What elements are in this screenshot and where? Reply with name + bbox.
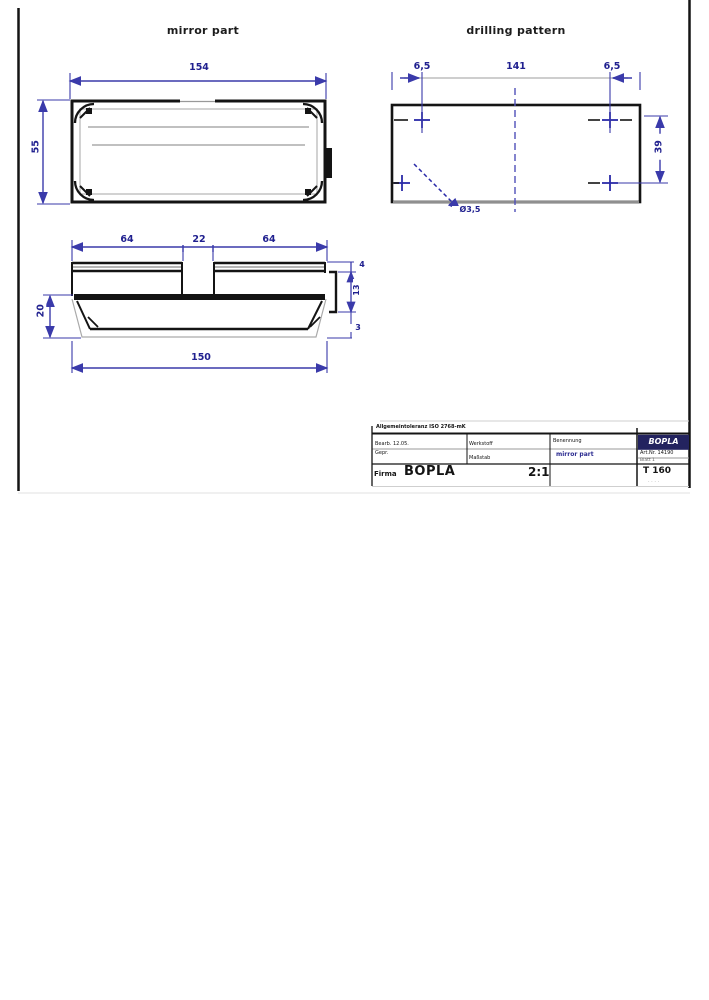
checked-by-row: Gepr. <box>375 451 388 456</box>
view-title-mirror-part: mirror part <box>148 25 258 36</box>
dim-front-body-height: 20 <box>36 298 46 324</box>
dim-front-right-middle: 13 <box>353 279 361 301</box>
scale-value: 2:1 <box>528 466 550 478</box>
part-name-label: Benennung <box>553 439 582 444</box>
drawing-linework <box>0 0 709 1000</box>
drilling-pattern-geometry <box>392 88 640 212</box>
drawn-by-row: Bearb. 12.05. <box>375 442 409 447</box>
dim-drill-vertical-spacing: 39 <box>654 134 664 160</box>
view-title-drilling-pattern: drilling pattern <box>452 25 580 36</box>
dim-drill-edge-offset-left: 6,5 <box>404 62 440 72</box>
drill-hole-callout: Ø3,5 <box>452 206 488 214</box>
revision-dots: · · · · <box>648 480 659 485</box>
drilling-pattern-dimensions <box>392 64 668 183</box>
dim-front-right-bottom: 3 <box>350 324 366 332</box>
part-name-value: mirror part <box>556 452 594 458</box>
dim-front-segment-center: 22 <box>182 235 216 245</box>
drill-hole-ticks <box>392 120 632 183</box>
dim-front-overall-length: 150 <box>180 353 222 363</box>
part-code: T 160 <box>643 467 671 476</box>
scale-label: Maßstab <box>469 456 490 461</box>
tolerance-note: Allgemeintoleranz ISO 2768-mK <box>376 425 466 430</box>
company-name: BOPLA <box>404 465 455 478</box>
dim-drill-edge-offset-right: 6,5 <box>594 62 630 72</box>
company-logo: BOPLA <box>638 438 689 446</box>
dim-drill-hole-spacing: 141 <box>498 62 534 72</box>
drill-hole-markers <box>394 112 618 191</box>
company-label: Firma <box>374 471 397 478</box>
sheet-number: Blatt 1 <box>640 459 655 464</box>
dim-top-view-height: 55 <box>31 133 41 161</box>
dim-front-segment-left: 64 <box>110 235 144 245</box>
drawing-sheet: mirror part drilling pattern 154 55 64 2… <box>0 0 709 1000</box>
article-number: Art.Nr. 14190 <box>640 451 673 456</box>
dim-front-right-top: 4 <box>354 261 370 269</box>
material-label: Werkstoff <box>469 442 493 447</box>
front-view-geometry <box>72 262 336 337</box>
dim-front-segment-right: 64 <box>252 235 286 245</box>
dim-top-view-width: 154 <box>178 63 220 73</box>
top-view-geometry <box>72 101 332 202</box>
